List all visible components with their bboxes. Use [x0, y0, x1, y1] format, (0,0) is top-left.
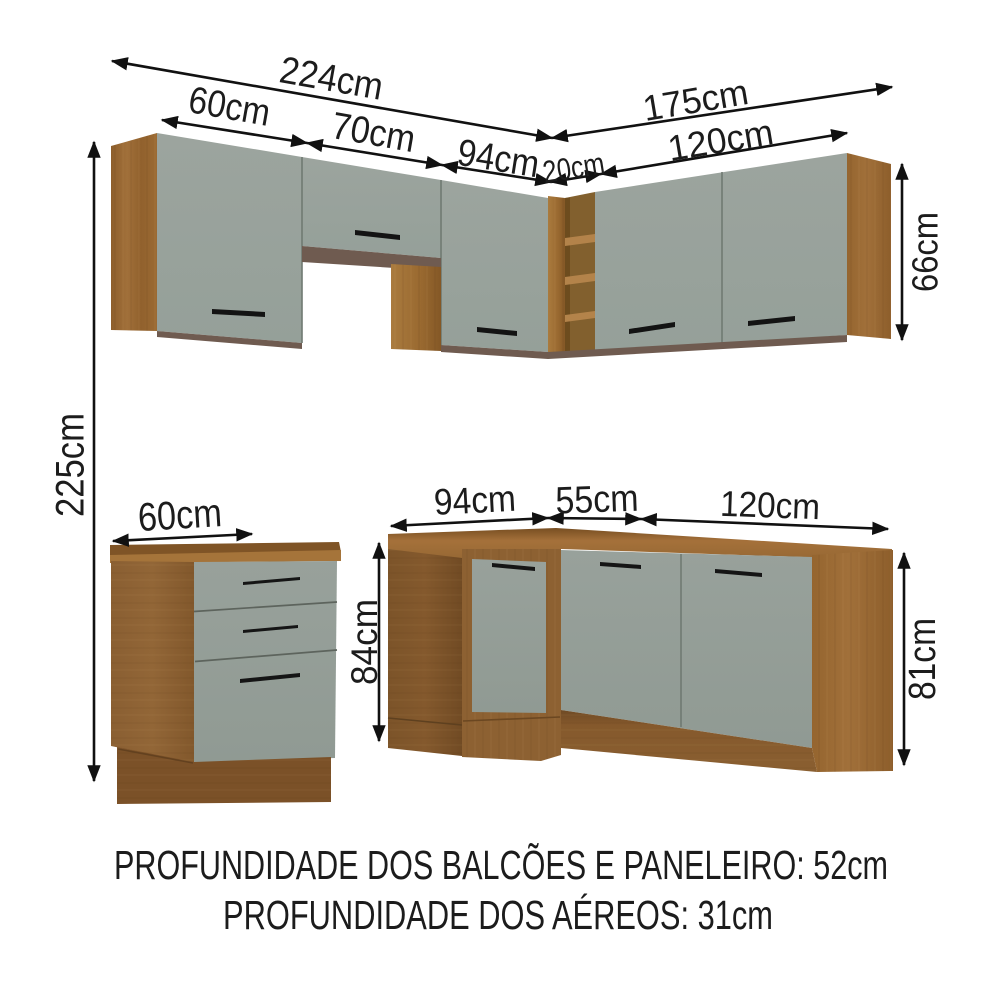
svg-text:84cm: 84cm	[344, 599, 385, 685]
svg-text:60cm: 60cm	[137, 491, 224, 540]
svg-text:94cm: 94cm	[433, 478, 517, 523]
svg-text:66cm: 66cm	[905, 212, 946, 292]
svg-text:55cm: 55cm	[555, 478, 639, 523]
svg-text:20cm: 20cm	[540, 146, 607, 190]
svg-text:PROFUNDIDADE DOS BALCÕES E PAN: PROFUNDIDADE DOS BALCÕES E PANELEIRO: 52…	[114, 842, 888, 888]
svg-text:81cm: 81cm	[902, 618, 944, 700]
svg-text:120cm: 120cm	[719, 483, 820, 527]
svg-text:PROFUNDIDADE DOS AÉREOS: 31cm: PROFUNDIDADE DOS AÉREOS: 31cm	[223, 892, 773, 938]
svg-text:94cm: 94cm	[455, 132, 543, 186]
svg-text:225cm: 225cm	[49, 413, 93, 517]
svg-text:224cm: 224cm	[276, 49, 386, 108]
